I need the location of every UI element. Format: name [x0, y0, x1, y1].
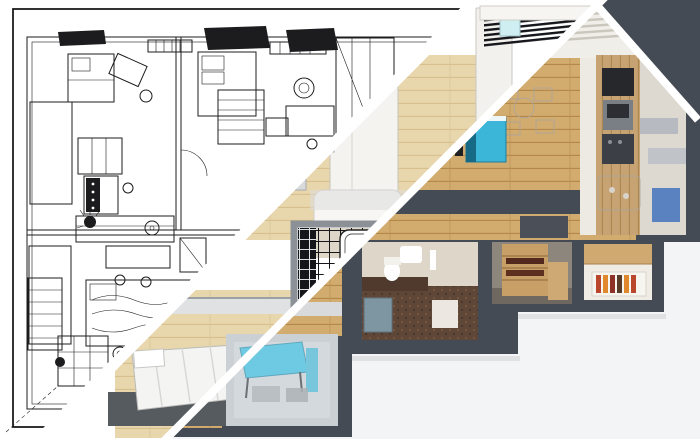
kitchen-blue-panel	[652, 188, 680, 222]
rendered-balcony	[226, 334, 338, 426]
floorplan-visualization	[0, 0, 700, 439]
entry-wood-counter	[584, 244, 652, 264]
bathroom-shower-tray	[364, 298, 392, 332]
render-doormat	[520, 216, 568, 238]
sketch-plant	[84, 216, 96, 228]
window-bar-icon	[204, 26, 270, 50]
render-entry-room	[584, 244, 652, 300]
bathroom-mat	[432, 300, 458, 328]
floorplan-canvas	[0, 0, 700, 439]
window-bar-icon	[286, 28, 338, 52]
render-wardrobe-room	[492, 242, 572, 304]
window-bar-icon	[58, 30, 106, 46]
bathroom-boiler	[400, 246, 422, 263]
render-bathroom	[362, 242, 478, 340]
kitchen-tv	[602, 68, 634, 96]
kitchen-microwave	[602, 134, 634, 164]
